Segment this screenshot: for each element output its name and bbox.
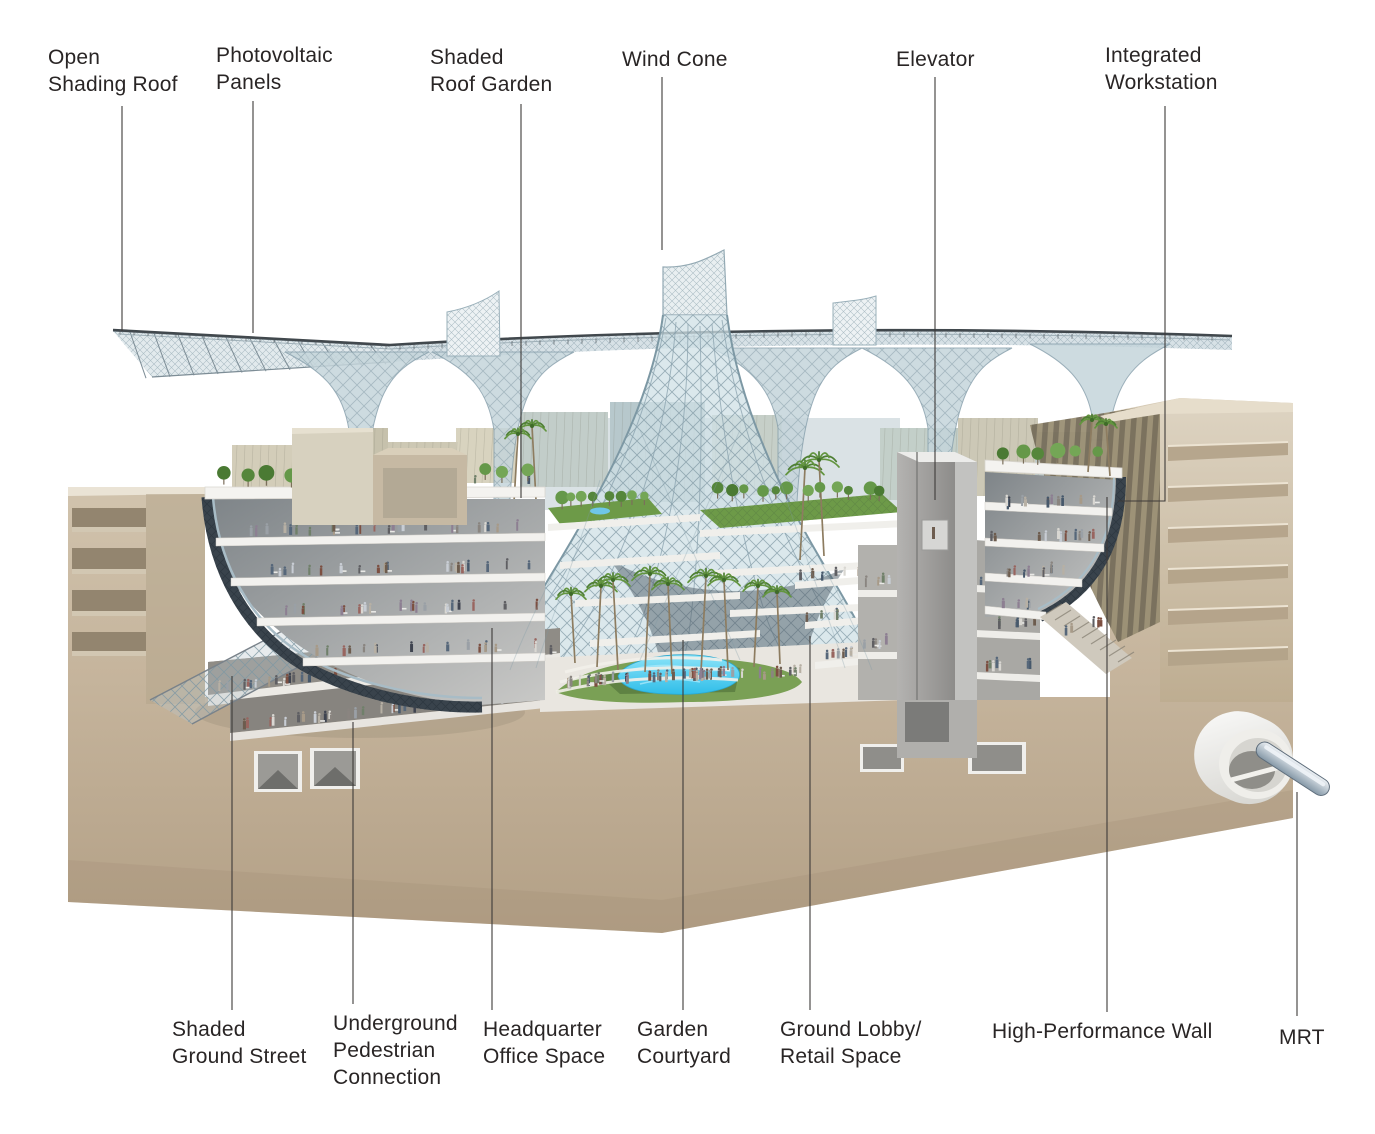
section-illustration	[0, 0, 1375, 1134]
label-photovoltaic-panels: Photovoltaic Panels	[216, 42, 333, 96]
label-garden-courtyard: Garden Courtyard	[637, 1016, 731, 1070]
elevator-shaft	[897, 452, 977, 758]
label-elevator: Elevator	[896, 46, 975, 73]
label-high-performance-wall: High-Performance Wall	[992, 1018, 1213, 1045]
label-headquarter-office-space: Headquarter Office Space	[483, 1016, 605, 1070]
label-underground-pedestrian-connection: Underground Pedestrian Connection	[333, 1010, 458, 1091]
label-shaded-ground-street: Shaded Ground Street	[172, 1016, 307, 1070]
label-open-shading-roof: Open Shading Roof	[48, 44, 178, 98]
label-wind-cone: Wind Cone	[622, 46, 728, 73]
label-mrt: MRT	[1279, 1024, 1325, 1051]
label-integrated-workstation: Integrated Workstation	[1105, 42, 1218, 96]
architectural-section-diagram: Open Shading Roof Photovoltaic Panels Sh…	[0, 0, 1375, 1134]
label-shaded-roof-garden: Shaded Roof Garden	[430, 44, 552, 98]
label-ground-lobby-retail: Ground Lobby/ Retail Space	[780, 1016, 922, 1070]
